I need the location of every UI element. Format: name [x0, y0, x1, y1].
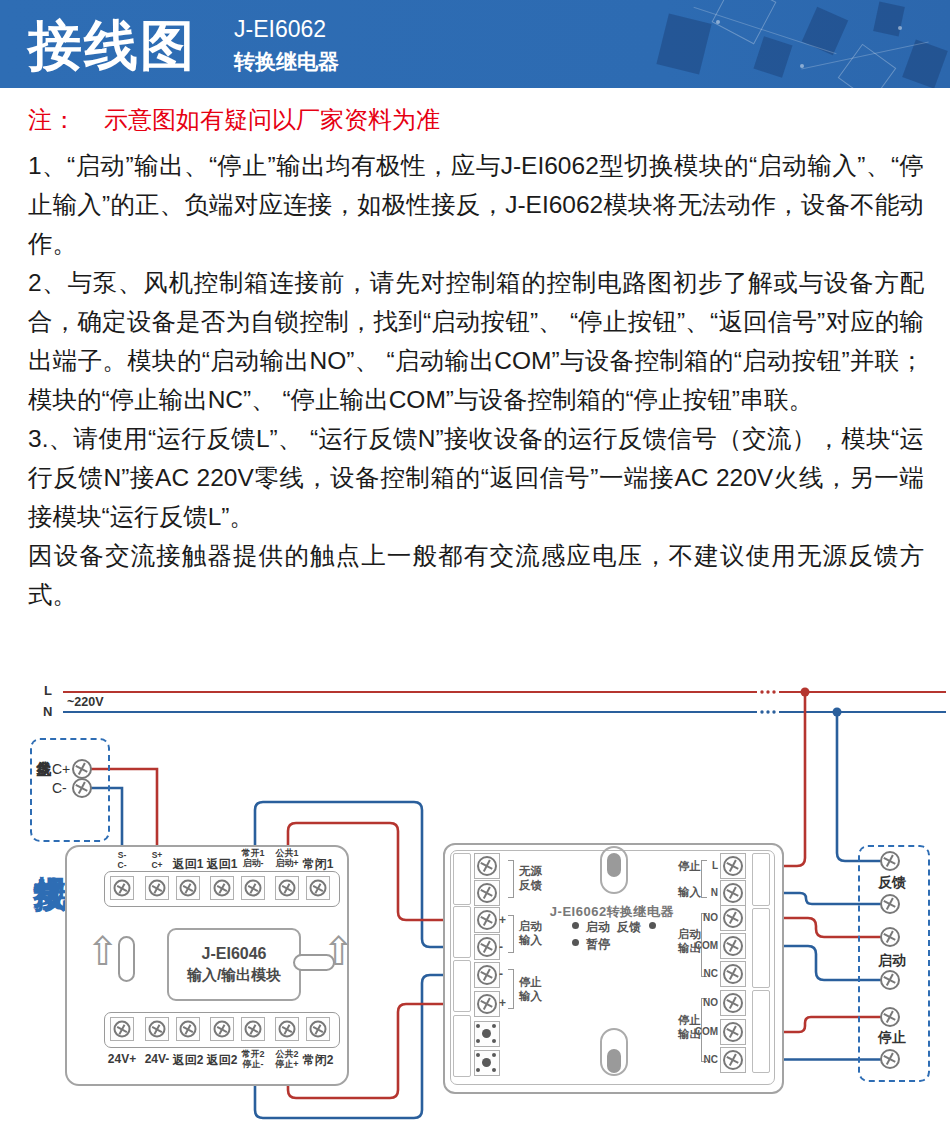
screw-terminal-icon [275, 1017, 299, 1041]
screw-terminal-icon [474, 853, 500, 879]
note-line: 注：示意图如有疑问以厂家资料为准 [28, 104, 440, 136]
power-n-label: N [43, 704, 52, 719]
device-start-label: 启动 [858, 952, 926, 970]
deco-cube [712, 0, 777, 44]
screw-terminal-icon [720, 1019, 746, 1045]
terminal-cell [453, 960, 471, 1012]
wiring-diagram: L N ~220V 多线盘 C+ C- 常规接线 S-C- S+C+ 返回1 返… [0, 677, 950, 1147]
deco-cube [802, 7, 849, 56]
terminal-cell [453, 853, 471, 905]
buzzer-vent-icon [474, 1021, 500, 1047]
deco-dot [716, 20, 720, 24]
pin-label: L [694, 860, 718, 871]
loop-panel-c-plus-label: C+ [52, 761, 70, 777]
junction-dot-n [833, 708, 842, 717]
screw-terminal-icon [72, 778, 92, 798]
screw-terminal-icon [474, 934, 500, 960]
screw-terminal-icon [880, 970, 900, 990]
pin-label: NO [694, 912, 718, 923]
screw-terminal-icon [275, 876, 299, 900]
passive-feedback-label: 无源反馈 [519, 864, 542, 892]
paragraph-4: 因设备交流接触器提供的触点上一般都有交流感应电压，不建议使用无源反馈方式。 [28, 536, 924, 614]
loop-panel-title: 多线盘 [34, 749, 53, 829]
note-text: 示意图如有疑问以厂家资料为准 [104, 106, 440, 133]
model-number: J-EI6062 [234, 16, 326, 43]
page-title: 接线图 [28, 10, 196, 83]
pin-label: N [694, 887, 718, 898]
screw-terminal-icon [176, 1017, 200, 1041]
pin-label: COM [694, 940, 718, 951]
screw-terminal-icon [145, 876, 169, 900]
screw-terminal-icon [720, 961, 746, 987]
terminal-label: 常闭2 [295, 1052, 341, 1069]
screw-terminal-icon [720, 990, 746, 1016]
pin-label: NC [694, 968, 718, 979]
polarity-sign: + [499, 996, 506, 1010]
terminal-cell [752, 990, 770, 1073]
screw-terminal-icon [720, 933, 746, 959]
screw-terminal-icon [210, 1017, 234, 1041]
start-input-label: 启动输入 [519, 919, 542, 947]
device-feedback-label: 反馈 [858, 874, 926, 892]
deco-dot [800, 64, 804, 68]
pin-label: NC [694, 1054, 718, 1065]
power-l-label: L [44, 683, 52, 698]
relay-title: J-EI6062转换继电器 [512, 903, 712, 921]
wire-n-to-feedback [837, 712, 880, 861]
led-feedback-label: 反馈 [617, 919, 641, 936]
io-model-text: J-EI6046 [202, 945, 267, 963]
device-stop-label: 停止 [858, 1029, 926, 1047]
screw-terminal-icon [72, 759, 92, 779]
deco-cube [838, 44, 897, 88]
header-banner: 接线图 J-EI6062 转换继电器 [0, 0, 950, 88]
junction-dot-l [801, 688, 810, 697]
buzzer-vent-icon [474, 1050, 500, 1076]
screw-terminal-icon [210, 876, 234, 900]
terminal-cell [453, 906, 471, 958]
screw-terminal-icon [720, 880, 746, 906]
io-name-text: 输入/输出模块 [187, 966, 281, 985]
power-voltage-label: ~220V [67, 695, 104, 709]
terminal-label: 常闭1 [295, 856, 341, 873]
up-arrow-icon: ⇧ [86, 931, 120, 971]
paragraph-1: 1、“启动”输出、“停止”输出均有极性，应与J-EI6062型切换模块的“启动输… [28, 146, 924, 263]
pin-label: NO [694, 997, 718, 1008]
terminal-cell [453, 1015, 471, 1077]
mounting-keyhole [600, 1028, 628, 1076]
note-label: 注： [28, 106, 76, 133]
screw-terminal-icon [474, 880, 500, 906]
screw-terminal-icon [110, 876, 134, 900]
banner-decoration [650, 0, 950, 88]
loop-panel-c-minus-label: C- [52, 780, 67, 796]
screw-terminal-icon [880, 894, 900, 914]
led-pause-icon [572, 939, 579, 946]
screw-terminal-icon [110, 1017, 134, 1041]
group-bracket [508, 969, 514, 1009]
mount-slot [118, 936, 135, 982]
screw-terminal-icon [241, 1017, 265, 1041]
polarity-sign: - [499, 940, 503, 954]
screw-terminal-icon [145, 1017, 169, 1041]
terminal-cell [752, 853, 770, 906]
wire-n-break-dots [760, 710, 775, 713]
screw-terminal-icon [880, 927, 900, 947]
deco-line [694, 7, 837, 54]
screw-terminal-icon [241, 876, 265, 900]
up-arrow-icon: ⇧ [322, 931, 356, 971]
terminal-cell [752, 908, 770, 988]
deco-cube [902, 39, 948, 88]
screw-terminal-icon [720, 1047, 746, 1073]
deco-cube [873, 2, 905, 37]
group-bracket [508, 860, 514, 898]
screw-terminal-icon [720, 853, 746, 879]
deco-cube [753, 36, 792, 78]
led-pause-label: 暂停 [586, 936, 610, 953]
led-start-label: 启动 [586, 919, 610, 936]
io-nameplate: J-EI6046 输入/输出模块 [167, 928, 301, 1001]
led-feedback-icon [649, 922, 656, 929]
screw-terminal-icon [306, 876, 330, 900]
screw-terminal-icon [880, 1049, 900, 1069]
product-name: 转换继电器 [234, 48, 339, 76]
screw-terminal-icon [474, 962, 500, 988]
screw-terminal-icon [880, 851, 900, 871]
screw-terminal-icon [720, 905, 746, 931]
terminal-label: S-C- [102, 851, 142, 870]
paragraph-3: 3.、请使用“运行反馈L”、 “运行反馈N”接收设备的运行反馈信号（交流），模块… [28, 419, 924, 536]
pin-label: COM [694, 1026, 718, 1037]
screw-terminal-icon [474, 907, 500, 933]
deco-cube [656, 13, 711, 74]
stop-input-label: 停止输入 [519, 975, 542, 1003]
wire-relay-l [777, 692, 805, 866]
screw-terminal-icon [176, 876, 200, 900]
instructions: 1、“启动”输出、“停止”输出均有极性，应与J-EI6062型切换模块的“启动输… [28, 146, 924, 614]
deco-dot [898, 26, 902, 30]
mounting-keyhole [600, 846, 628, 894]
screw-terminal-icon [880, 1007, 900, 1027]
deco-line [801, 41, 928, 69]
screw-terminal-icon [306, 1017, 330, 1041]
document-page: 接线图 J-EI6062 转换继电器 注：示意图如有疑问以厂家资料为准 1、“启… [0, 0, 950, 1147]
paragraph-2: 2、与泵、风机控制箱连接前，请先对控制箱的控制电路图初步了解或与设备方配合，确定… [28, 263, 924, 419]
wire-l-break-dots [760, 690, 775, 693]
screw-terminal-icon [474, 991, 500, 1017]
polarity-sign: + [499, 913, 506, 927]
polarity-sign: - [499, 967, 503, 981]
led-start-icon [572, 922, 579, 929]
